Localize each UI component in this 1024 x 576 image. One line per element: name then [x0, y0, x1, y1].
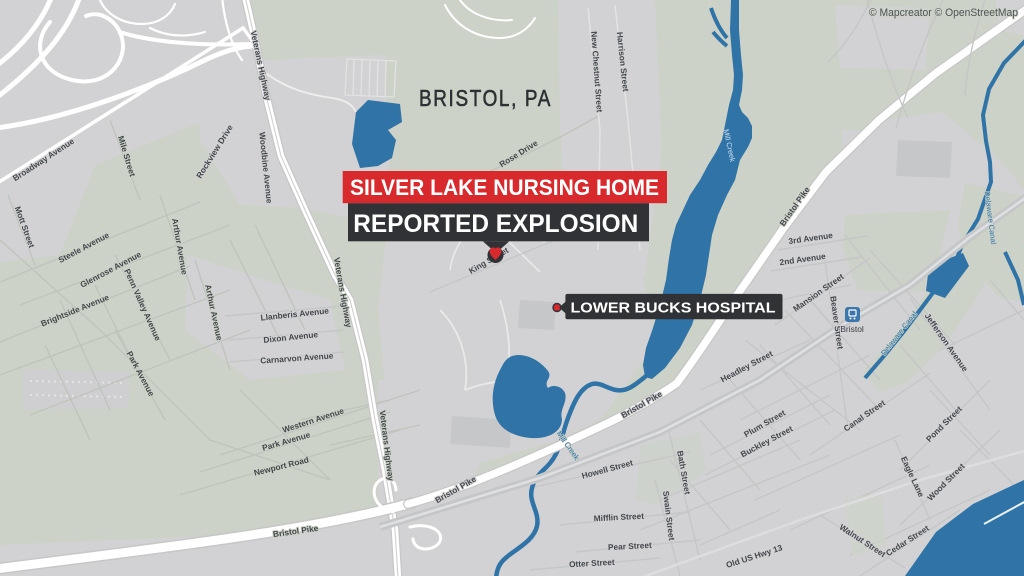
svg-text:Bristol: Bristol: [840, 324, 864, 334]
svg-text:LOWER BUCKS HOSPITAL: LOWER BUCKS HOSPITAL: [571, 301, 776, 317]
svg-text:SILVER LAKE NURSING HOME: SILVER LAKE NURSING HOME: [350, 175, 659, 200]
svg-text:REPORTED EXPLOSION: REPORTED EXPLOSION: [353, 210, 638, 238]
svg-text:© Mapcreator © OpenStreetMap: © Mapcreator © OpenStreetMap: [869, 7, 1018, 19]
svg-text:BRISTOL, PA: BRISTOL, PA: [419, 85, 552, 111]
